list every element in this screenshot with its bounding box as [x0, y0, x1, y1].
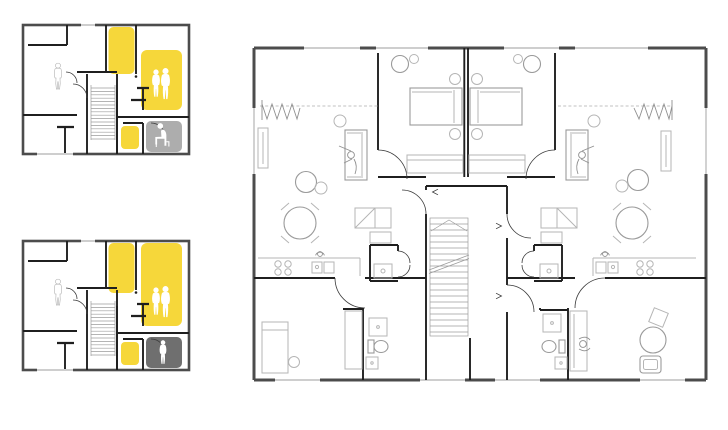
circulation-arrows: [433, 189, 502, 299]
staircase: [91, 85, 115, 140]
highlight-zone-wc: [121, 342, 139, 365]
detailed-plan: [248, 24, 712, 394]
stair-core: [402, 186, 534, 380]
chair: [649, 308, 669, 328]
bathroom-upper: [522, 245, 562, 281]
study-lower-right: [570, 308, 668, 373]
person-at-counter: [601, 252, 610, 257]
living-room: [258, 100, 378, 243]
apartment-left: [254, 53, 463, 380]
highlight-zone-bedroom: [141, 243, 182, 326]
living-room: [558, 100, 672, 243]
toilet: [542, 340, 565, 353]
side-table: [334, 115, 346, 127]
highlight-zones: [109, 27, 183, 152]
schematic-plan-top: [15, 10, 200, 178]
wardrobe: [469, 155, 525, 173]
party-wall: [464, 48, 468, 177]
stool: [289, 357, 300, 368]
sofa: [566, 130, 594, 180]
nightstand: [472, 74, 483, 85]
stair-break-line: [429, 255, 469, 274]
side-table: [588, 115, 600, 127]
washbasin-unit: [369, 318, 387, 336]
kitchen: [593, 252, 696, 276]
floor-plan-figure: [0, 0, 728, 430]
stair-direction-arrow: [431, 220, 467, 231]
person-at-counter: [316, 252, 325, 257]
schematic-plan-bottom: [15, 226, 200, 394]
wardrobe: [407, 155, 463, 173]
toilet: [368, 340, 388, 353]
bathroom-lower-left: [366, 318, 388, 369]
dining-table: [281, 203, 319, 243]
highlight-zone-hall: [109, 27, 135, 74]
nightstand: [450, 129, 461, 140]
bedroom-right: [469, 55, 541, 174]
highlight-zone-hall: [109, 243, 135, 293]
nightstand: [472, 129, 483, 140]
highlight-zone-wc: [121, 126, 139, 149]
staircase: [429, 218, 469, 336]
bedroom-lower-left: [262, 308, 363, 380]
nightstand: [450, 74, 461, 85]
kitchen: [258, 252, 360, 276]
standing-person-outline-icon: [54, 279, 61, 305]
bedroom-left: [392, 55, 464, 174]
bathroom-upper: [370, 245, 410, 281]
washbasin-unit: [543, 314, 561, 332]
wardrobe: [345, 311, 362, 369]
highlight-zones: [109, 243, 183, 368]
corner-chair: [392, 56, 409, 73]
dining-table: [613, 203, 651, 243]
hall-closets: [355, 208, 391, 243]
staircase: [91, 301, 115, 356]
person-at-desk: [579, 337, 590, 351]
round-table: [640, 327, 666, 353]
hall-closets: [541, 208, 577, 243]
standing-person-outline-icon: [54, 63, 61, 89]
apartment-right: [469, 53, 706, 380]
corner-chair: [524, 56, 541, 73]
armchair: [628, 170, 649, 191]
armchair: [296, 172, 317, 193]
sofa: [339, 130, 367, 180]
bathroom-lower-right: [540, 308, 568, 380]
